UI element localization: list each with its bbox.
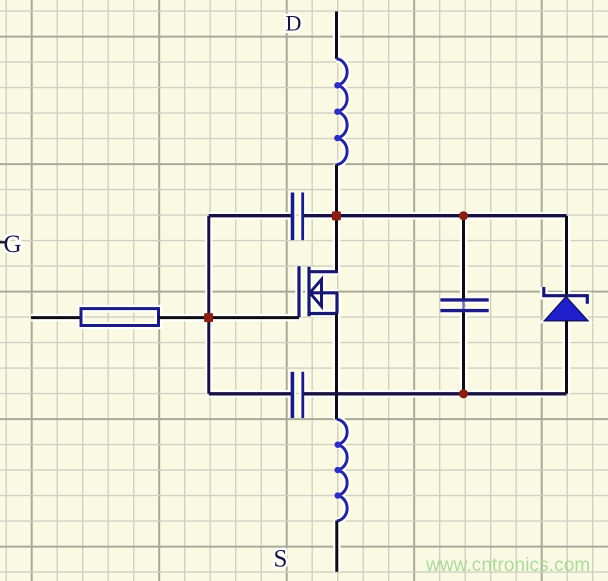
svg-text:G: G xyxy=(4,231,22,258)
svg-text:S: S xyxy=(274,546,288,573)
svg-text:D: D xyxy=(286,11,302,36)
svg-text:www.cntronics.com: www.cntronics.com xyxy=(425,555,590,576)
